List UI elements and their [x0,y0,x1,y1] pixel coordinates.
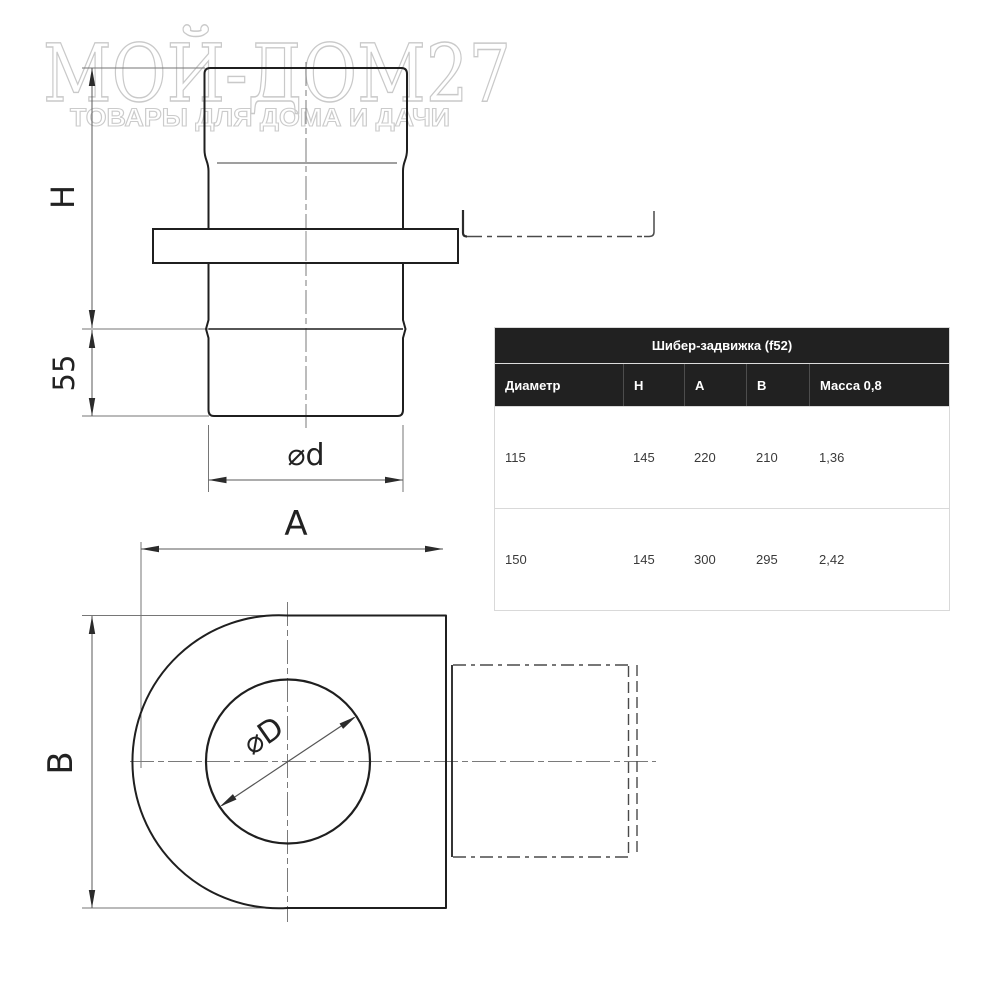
watermark: МОЙ-ДОМ27 ТОВАРЫ ДЛЯ ДОМА И ДАЧИ [43,24,511,132]
table-row: 115 145 220 210 1,36 [495,406,949,508]
dimension-55: 55 [47,330,95,416]
cell-H: 145 [623,407,684,508]
cell-B: 295 [746,509,809,610]
column-header-mass: Масса 0,8 [809,364,949,406]
handle-hook-left [463,210,467,237]
top-center-cross [130,602,656,922]
column-header-diameter: Диаметр [495,364,623,406]
watermark-subtitle: ТОВАРЫ ДЛЯ ДОМА И ДАЧИ [70,104,450,132]
label-diameter-d: ⌀d [287,438,324,473]
cell-A: 220 [684,407,746,508]
dimension-B: B [41,616,95,908]
label-A: A [284,504,307,544]
cell-diameter: 115 [495,407,623,508]
column-header-A: А [684,364,746,406]
label-diameter-D: ⌀D [237,710,291,762]
label-H: H [44,185,82,209]
spec-table: Шибер-задвижка (f52) Диаметр Н А В Масса… [494,327,950,611]
column-header-B: В [746,364,809,406]
label-55: 55 [47,355,81,392]
page: { "watermark": { "title": "МОЙ-ДОМ27", "… [0,0,1000,1000]
dimension-d: ⌀d [209,438,404,483]
handle-hook-right [644,211,654,237]
dimension-A: A [141,504,443,552]
column-header-H: Н [623,364,684,406]
cell-H: 145 [623,509,684,610]
top-extension-lines [82,542,272,908]
table-row: 150 145 300 295 2,42 [495,508,949,610]
spec-table-header-row: Диаметр Н А В Масса 0,8 [495,364,949,406]
damper-handle [463,210,654,237]
cell-mass: 1,36 [809,407,949,508]
cell-mass: 2,42 [809,509,949,610]
label-B: B [41,751,81,774]
spec-table-title: Шибер-задвижка (f52) [495,328,949,364]
cell-diameter: 150 [495,509,623,610]
cell-B: 210 [746,407,809,508]
cell-A: 300 [684,509,746,610]
